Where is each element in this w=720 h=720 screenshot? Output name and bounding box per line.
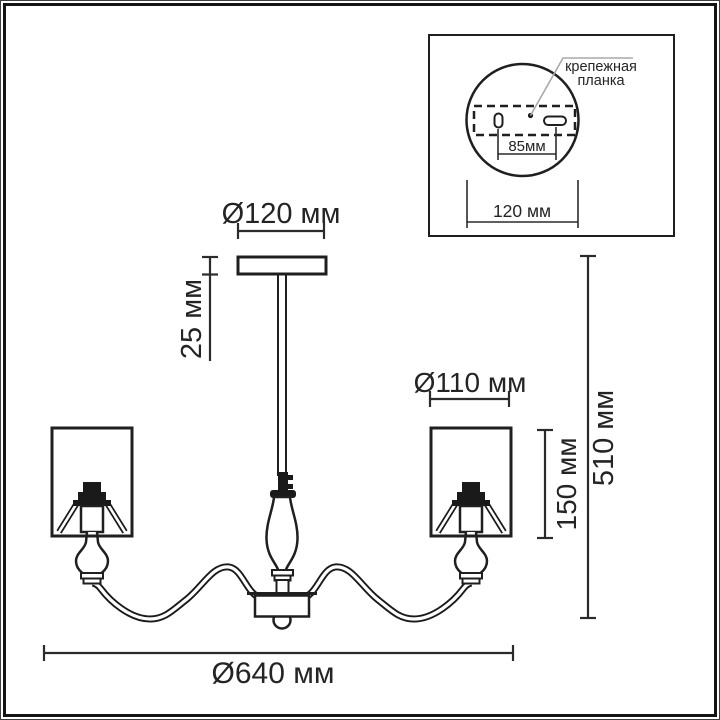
- right-arm: [302, 567, 471, 619]
- inset-plate-diameter-label: 120 мм: [493, 201, 551, 221]
- canopy-diameter-label: Ø120 мм: [222, 198, 341, 230]
- mounting-hole-small: [495, 114, 503, 128]
- rod-connector: [270, 472, 296, 498]
- left-lamp: [52, 428, 132, 584]
- total-height-label: 510 мм: [588, 390, 620, 486]
- total-diameter-label: Ø640 мм: [212, 657, 335, 690]
- chandelier: [52, 257, 511, 629]
- right-stem: [455, 532, 487, 574]
- left-socket: [81, 506, 103, 532]
- inset-hole-spacing-label: 85мм: [508, 138, 545, 155]
- right-socket: [460, 506, 482, 532]
- suspension-rod: [278, 273, 286, 475]
- hub-box: [255, 596, 309, 617]
- diagram-frame: крепежная планка 85мм 120 мм: [0, 0, 720, 720]
- left-arm: [93, 567, 262, 619]
- canopy-height-label: 25 мм: [176, 279, 208, 359]
- ceiling-canopy: [238, 257, 326, 274]
- left-stem: [76, 532, 108, 574]
- dimension-lines: [44, 223, 596, 661]
- shade-height-label: 150 мм: [551, 438, 582, 531]
- chandelier-dimension-drawing: крепежная планка 85мм 120 мм: [1, 1, 720, 720]
- mounting-plate-inset: крепежная планка 85мм 120 мм: [429, 35, 674, 236]
- bracket-label-line2: планка: [577, 73, 625, 89]
- center-vase: [266, 497, 297, 571]
- shade-diameter-label: Ø110 мм: [414, 367, 527, 398]
- center-stem: [272, 570, 293, 595]
- center-hub: [247, 594, 317, 629]
- mounting-slot: [544, 117, 566, 126]
- right-lamp: [431, 428, 511, 584]
